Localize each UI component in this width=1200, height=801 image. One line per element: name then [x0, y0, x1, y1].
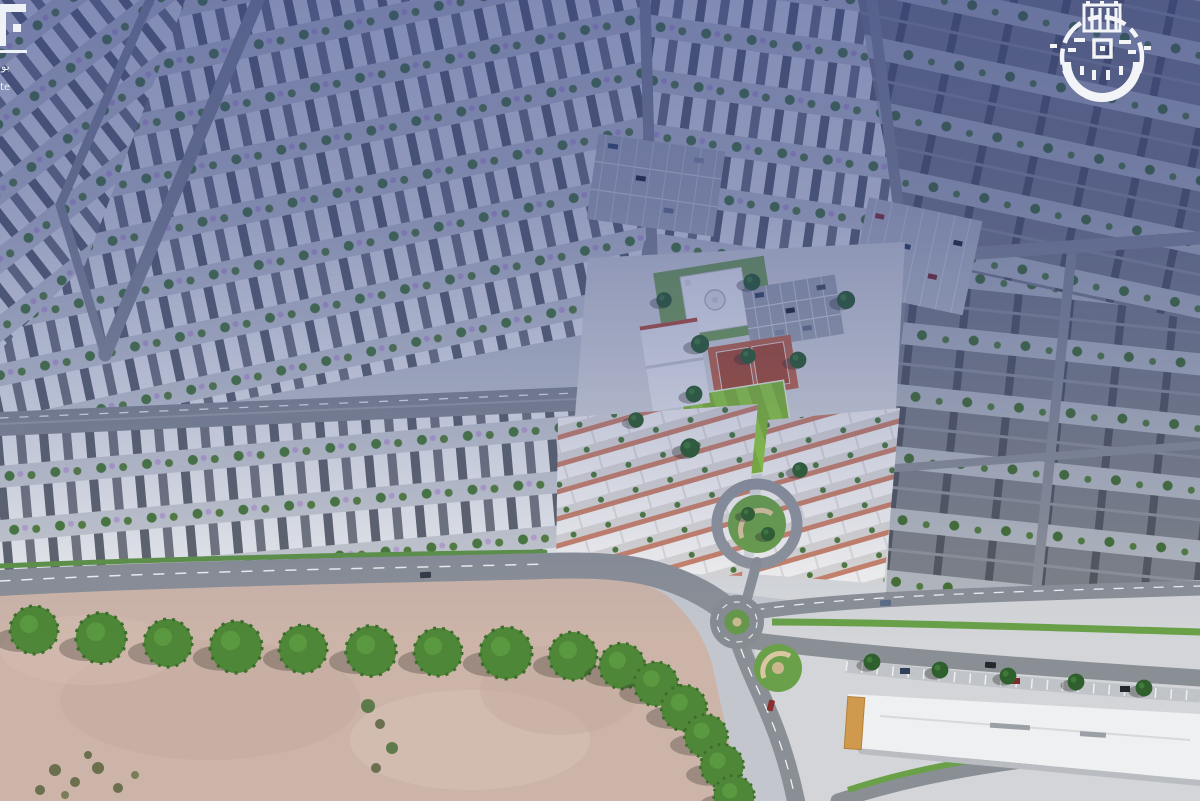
aerial-masterplan-render: بوا ate — [0, 0, 1200, 801]
logo-glyph-dot — [13, 24, 21, 32]
municipality-kufic-emblem-icon — [1040, 0, 1160, 110]
car — [880, 600, 891, 607]
developer-logo-partial: بوا ate — [0, 0, 40, 110]
roundabout — [710, 595, 764, 649]
car — [900, 668, 910, 674]
logo-latin-text: ate — [0, 82, 10, 93]
corner-garden — [754, 644, 802, 692]
circular-park — [717, 484, 797, 564]
emblem-mark — [1074, 38, 1085, 42]
entrance-feature — [844, 697, 865, 750]
emblem-mark — [1119, 40, 1131, 44]
emblem-center-dot — [1100, 46, 1105, 51]
scene — [0, 0, 1200, 801]
emblem-mark — [1128, 50, 1136, 54]
emblem-mark — [1119, 66, 1123, 75]
municipality-emblem — [1040, 0, 1160, 110]
emblem-wing — [1144, 46, 1151, 50]
parking-top-center — [587, 134, 726, 237]
logo-arabic-text: بوا — [0, 60, 10, 73]
logo-underline — [0, 50, 27, 53]
car — [985, 662, 996, 669]
emblem-mark — [1080, 66, 1084, 75]
emblem-mark — [1068, 48, 1076, 52]
logo-glyph-sidebar — [0, 4, 6, 46]
emblem-mark — [1106, 70, 1110, 80]
emblem-bowl — [1062, 62, 1142, 102]
car — [420, 572, 431, 579]
emblem-wing — [1050, 44, 1057, 48]
partial-developer-logo — [0, 0, 40, 58]
emblem-mark — [1092, 70, 1096, 80]
